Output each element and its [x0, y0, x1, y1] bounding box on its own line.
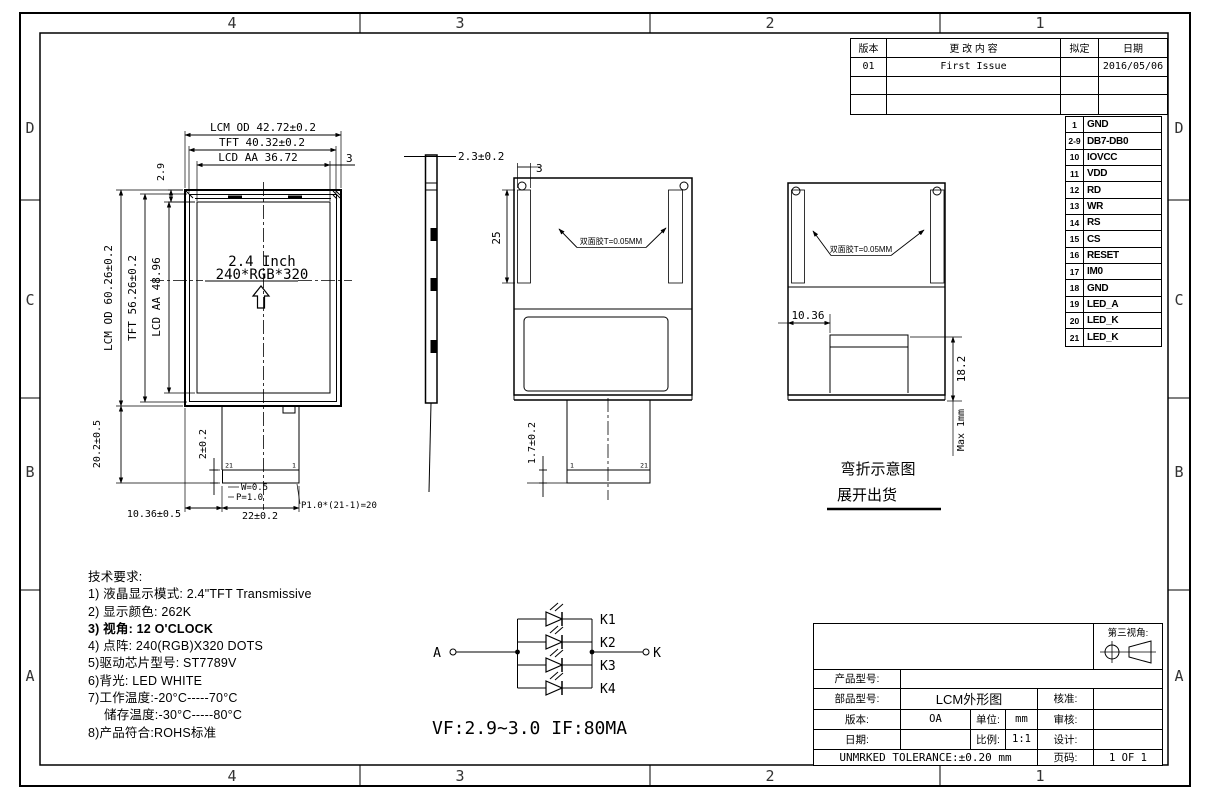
part-model-label: 部品型号: — [814, 689, 901, 709]
pin-number: 1 — [1066, 117, 1084, 133]
pin-number: 2-9 — [1066, 133, 1084, 149]
unit-value: mm — [1006, 710, 1038, 729]
dim-fpc-length: 20.2±0.5 — [92, 420, 103, 468]
zone-col-3-top: 3 — [455, 14, 464, 32]
pin-number: 12 — [1066, 182, 1084, 198]
led-k4-label: K4 — [600, 682, 616, 697]
rev-cell-date — [1099, 77, 1167, 96]
review-value — [1094, 710, 1162, 729]
dim-lcm-od-width: LCM OD 42.72±0.2 — [210, 121, 316, 134]
zone-row-d-right: D — [1174, 119, 1183, 137]
dim-unfold-length: 18.2 — [955, 356, 968, 383]
page-value: 1 OF 1 — [1094, 750, 1162, 766]
dim-lcm-od-height: LCM OD 60.26±0.2 — [102, 245, 115, 351]
pin-number: 11 — [1066, 166, 1084, 182]
zone-col-3-bottom: 3 — [455, 767, 464, 785]
zone-row-a-left: A — [25, 667, 34, 685]
rev-cell-version — [851, 95, 887, 114]
rev-cell-date — [1099, 95, 1167, 114]
lcm-engineering-drawing: 4 3 2 1 4 3 2 1 D C B A D C B A 2.4 Inch… — [0, 0, 1206, 799]
tech-item: 2) 显示颜色: 262K — [88, 604, 428, 621]
panel-resolution-label: 240*RGB*320 — [216, 267, 309, 283]
dim-tooth-pitch: P=1.0 — [236, 493, 263, 503]
tolerance-note: UNMRKED TOLERANCE:±0.20 mm — [814, 750, 1038, 766]
rev-header-content: 更 改 内 容 — [887, 39, 1061, 58]
dim-connector-offset: 2±0.2 — [198, 429, 209, 459]
tech-item: 7)工作温度:-20°C-----70°C — [88, 690, 428, 707]
led-circuit: A K — [432, 603, 661, 739]
pin-signal: CS — [1084, 231, 1161, 247]
dim-tape-width: 3 — [536, 162, 543, 175]
version-value: OA — [901, 710, 971, 729]
third-angle-label: 第三视角: — [1108, 625, 1149, 639]
dim-tape-height: 25 — [490, 231, 503, 244]
rev-cell-drafted — [1061, 95, 1099, 114]
design-label: 设计: — [1038, 730, 1094, 749]
fpc-back-pin-21-label: 21 — [640, 462, 648, 470]
led-spec-label: VF:2.9~3.0 IF:80MA — [432, 718, 627, 739]
pin-signal: RESET — [1084, 248, 1161, 264]
product-model-label: 产品型号: — [814, 670, 901, 688]
dim-lcd-aa-height: LCD AA 48.96 — [150, 257, 163, 336]
fpc-pin-1-label: 1 — [292, 462, 296, 470]
date-value — [901, 730, 971, 749]
page-label: 页码: — [1038, 750, 1094, 766]
zone-row-b-right: B — [1174, 463, 1183, 481]
rev-cell-content: First Issue — [887, 58, 1061, 77]
dim-fpc-width: 22±0.2 — [242, 511, 278, 522]
led-k3-label: K3 — [600, 659, 616, 674]
title-block: 第三视角: 产品型号: 部品型号: LCM外形图 核准: 版本: OA 单位: … — [813, 623, 1163, 766]
rev-header-drafted: 拟定 — [1061, 39, 1099, 58]
tech-item: 储存温度:-30°C-----80°C — [88, 707, 428, 724]
unit-label: 单位: — [971, 710, 1006, 729]
zone-row-a-right: A — [1174, 667, 1183, 685]
rev-cell-drafted — [1061, 77, 1099, 96]
scale-label: 比例: — [971, 730, 1006, 749]
dim-pin-pitch-formula: P1.0*(21-1)=20 — [301, 501, 377, 511]
pin-number: 14 — [1066, 215, 1084, 231]
dim-tft-width: TFT 40.32±0.2 — [219, 136, 305, 149]
tech-item: 5)驱动芯片型号: ST7789V — [88, 655, 428, 672]
bend-note-line2: 展开出货 — [837, 487, 897, 504]
led-branch-1 — [518, 603, 593, 626]
dim-tooth-width: W=0.5 — [241, 483, 268, 493]
rev-header-version: 版本 — [851, 39, 887, 58]
tech-item: 6)背光: LED WHITE — [88, 673, 428, 690]
pin-signal: LED_K — [1084, 313, 1161, 329]
pin-number: 19 — [1066, 297, 1084, 313]
pin-number: 17 — [1066, 264, 1084, 280]
pin-signal: RS — [1084, 215, 1161, 231]
tech-item: 8)产品符合:ROHS标准 — [88, 725, 428, 742]
rev-cell-date: 2016/05/06 — [1099, 58, 1167, 77]
zone-col-4-bottom: 4 — [227, 767, 236, 785]
pin-table: 1 GND 2-9 DB7-DB0 10 IOVCC 11 VDD 12 RD … — [1065, 116, 1162, 347]
rev-cell-content — [887, 77, 1061, 96]
zone-col-2-bottom: 2 — [765, 767, 774, 785]
led-k1-label: K1 — [600, 613, 616, 628]
review-label: 审核: — [1038, 710, 1094, 729]
zone-row-d-left: D — [25, 119, 34, 137]
pin-number: 20 — [1066, 313, 1084, 329]
dim-connector-height: 1.7±0.2 — [527, 422, 538, 464]
zone-col-4-top: 4 — [227, 14, 236, 32]
tech-title: 技术要求: — [88, 569, 428, 586]
rev-header-date: 日期 — [1099, 39, 1167, 58]
zone-col-2-top: 2 — [765, 14, 774, 32]
tech-item: 4) 点阵: 240(RGB)X320 DOTS — [88, 638, 428, 655]
pin-number: 21 — [1066, 329, 1084, 345]
revision-table: 版本 更 改 内 容 拟定 日期 01 First Issue 2016/05/… — [850, 38, 1168, 115]
date-label: 日期: — [814, 730, 901, 749]
dim-max-bend: Max 1mm — [956, 409, 967, 451]
back-view: 双面胶T=0.05MM 25 3 1 21 1.7±0.2 — [490, 162, 692, 500]
unfolded-view: 双面胶T=0.05MM 10.36 18.2 Max 1mm — [778, 183, 968, 456]
dim-tft-height: TFT 56.26±0.2 — [126, 255, 139, 341]
zone-row-b-left: B — [25, 463, 34, 481]
pin-signal: IOVCC — [1084, 150, 1161, 166]
zone-col-1-top: 1 — [1035, 14, 1044, 32]
pin-signal: WR — [1084, 199, 1161, 215]
zone-col-1-bottom: 1 — [1035, 767, 1044, 785]
pin-signal: RD — [1084, 182, 1161, 198]
rev-cell-version — [851, 77, 887, 96]
dim-unfold-offset: 10.36 — [791, 309, 824, 322]
bend-note-line1: 弯折示意图 — [840, 460, 915, 478]
pin-signal: IM0 — [1084, 264, 1161, 280]
approve-label: 核准: — [1038, 689, 1094, 709]
fpc-pin-21-label: 21 — [225, 462, 233, 470]
tech-item: 1) 液晶显示模式: 2.4"TFT Transmissive — [88, 586, 428, 603]
pin-number: 18 — [1066, 280, 1084, 296]
front-view: 2.4 Inch 240*RGB*320 LCM OD 42.72±0.2 TF… — [92, 121, 377, 522]
tape-callout-unfolded: 双面胶T=0.05MM — [830, 244, 893, 254]
rev-cell-version: 01 — [851, 58, 887, 77]
bend-note: 弯折示意图 展开出货 — [827, 460, 941, 509]
pin-number: 16 — [1066, 248, 1084, 264]
pin-signal: DB7-DB0 — [1084, 133, 1161, 149]
pin-signal: GND — [1084, 117, 1161, 133]
pin-number: 15 — [1066, 231, 1084, 247]
zone-row-c-right: C — [1174, 291, 1183, 309]
title-block-logo-area — [814, 624, 1094, 669]
pin-number: 13 — [1066, 199, 1084, 215]
pin-number: 10 — [1066, 150, 1084, 166]
dim-edge-right: 3 — [346, 152, 353, 165]
orientation-arrow-icon — [253, 286, 269, 308]
fpc-back-pin-1-label: 1 — [570, 462, 574, 470]
tech-item: 3) 视角: 12 O'CLOCK — [88, 621, 428, 638]
led-branch-3 — [518, 649, 593, 672]
third-angle-cell: 第三视角: — [1094, 624, 1162, 669]
led-k2-label: K2 — [600, 636, 616, 651]
rev-cell-content — [887, 95, 1061, 114]
anode-label: A — [433, 646, 441, 661]
part-model-value: LCM外形图 — [901, 689, 1038, 709]
dim-top-border: 2.9 — [156, 163, 167, 181]
tape-callout: 双面胶T=0.05MM — [580, 236, 643, 246]
third-angle-projection-icon — [1099, 639, 1157, 665]
pin-signal: LED_A — [1084, 297, 1161, 313]
pin-signal: VDD — [1084, 166, 1161, 182]
led-branch-4 — [518, 672, 593, 695]
design-value — [1094, 730, 1162, 749]
approve-value — [1094, 689, 1162, 709]
scale-value: 1:1 — [1006, 730, 1038, 749]
dim-lcd-aa-width: LCD AA 36.72 — [218, 151, 297, 164]
zone-row-c-left: C — [25, 291, 34, 309]
product-model-value — [901, 670, 1162, 688]
pin-signal: LED_K — [1084, 329, 1161, 345]
version-label: 版本: — [814, 710, 901, 729]
pin-signal: GND — [1084, 280, 1161, 296]
rev-cell-drafted — [1061, 58, 1099, 77]
led-branch-2 — [518, 626, 593, 649]
side-view: 2.3±0.2 — [404, 150, 504, 492]
dim-thickness: 2.3±0.2 — [458, 150, 504, 163]
cathode-label: K — [653, 646, 661, 661]
dim-fpc-offset: 10.36±0.5 — [127, 509, 181, 520]
technical-requirements: 技术要求: 1) 液晶显示模式: 2.4"TFT Transmissive 2)… — [88, 569, 428, 742]
